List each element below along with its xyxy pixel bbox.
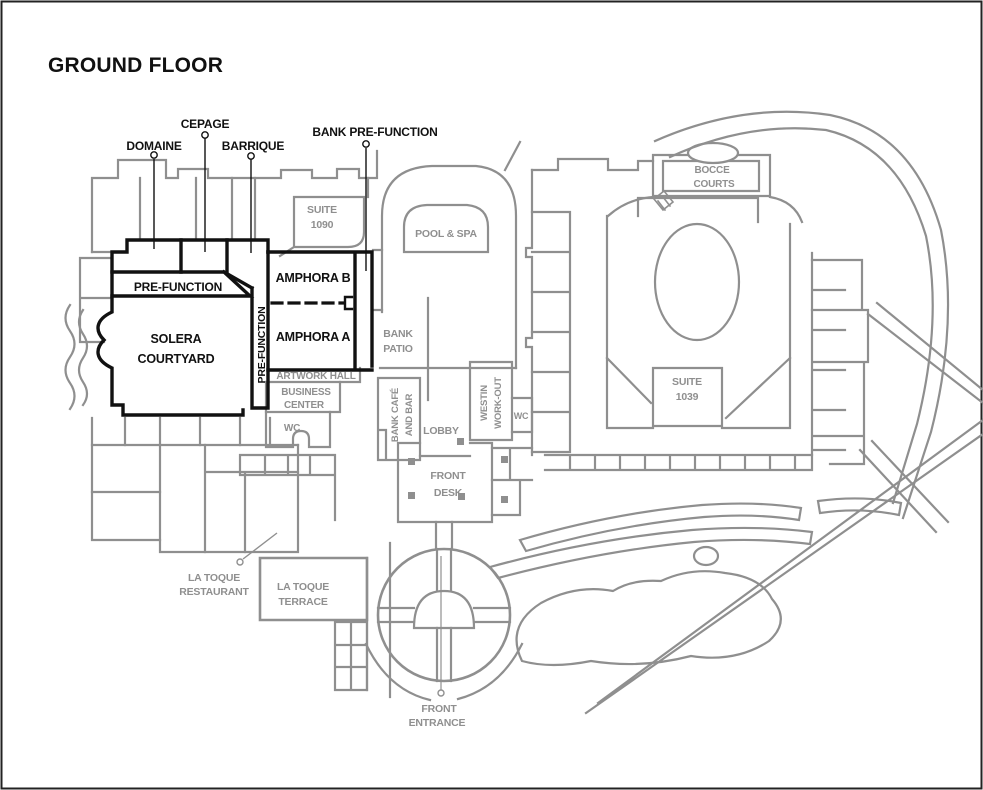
label-bank-patio-line-2: PATIO bbox=[383, 343, 413, 355]
label-pre-function: PRE-FUNCTION bbox=[134, 280, 222, 294]
east-building-west-corridor bbox=[532, 212, 570, 452]
column bbox=[501, 456, 508, 463]
label-lobby: LOBBY bbox=[423, 425, 459, 437]
label-solera-line-2: COURTYARD bbox=[138, 352, 215, 366]
label-suite-1039-line-1: SUITE bbox=[672, 376, 702, 388]
creek-line-1 bbox=[66, 305, 75, 409]
label-amphora-b: AMPHORA B bbox=[276, 271, 351, 285]
column bbox=[457, 438, 464, 445]
front-desk-room bbox=[398, 443, 492, 522]
floor-plan: GROUND FLOOR DOMAINE CEPAGE BARRIQUE BAN… bbox=[0, 0, 983, 790]
label-bocce-line-2: COURTS bbox=[693, 179, 735, 190]
label-business-center-line-2: CENTER bbox=[284, 400, 325, 411]
label-front-entrance-line-1: FRONT bbox=[421, 703, 457, 715]
label-la-toque-terrace-line-1: LA TOQUE bbox=[277, 581, 329, 593]
label-solera-line-1: SOLERA bbox=[151, 332, 202, 346]
amphora-outline bbox=[268, 252, 372, 370]
page-border bbox=[2, 2, 982, 789]
west-rooms bbox=[80, 258, 112, 342]
lobby-south-connectors bbox=[436, 522, 452, 549]
callout-cepage: CEPAGE bbox=[181, 117, 230, 131]
label-la-toque-restaurant-line-1: LA TOQUE bbox=[188, 572, 240, 584]
leader-dot-bank-pre-function bbox=[363, 141, 369, 147]
meeting-walls-black bbox=[98, 240, 372, 415]
leader-la-toque-restaurant bbox=[243, 533, 277, 559]
label-business-center-line-1: BUSINESS bbox=[281, 387, 331, 398]
courtyard-ring-walls bbox=[607, 216, 790, 428]
east-building-south-teeth bbox=[545, 455, 812, 470]
east-building-north-edge bbox=[532, 159, 653, 170]
label-suite-1039-line-2: 1039 bbox=[676, 391, 699, 403]
label-la-toque-terrace-line-2: TERRACE bbox=[278, 596, 328, 608]
label-pre-function-corridor: PRE-FUNCTION bbox=[256, 307, 268, 384]
label-suite-1090-line-2: 1090 bbox=[311, 219, 334, 231]
creek-line-2 bbox=[79, 310, 87, 405]
callout-domaine: DOMAINE bbox=[126, 139, 181, 153]
meeting-room-dividers bbox=[181, 240, 227, 272]
callout-barrique: BARRIQUE bbox=[222, 139, 285, 153]
label-westin-workout-line-1: WESTIN bbox=[479, 385, 490, 421]
terrace-south-grid bbox=[335, 622, 367, 690]
label-bank-patio-line-1: BANK bbox=[383, 328, 413, 340]
planting-blob bbox=[517, 571, 781, 665]
wing-northwest-east-stub bbox=[368, 151, 377, 178]
leader-dot-cepage bbox=[202, 132, 208, 138]
pool-west-connectors bbox=[373, 250, 382, 310]
label-front-desk-line-2: DESK bbox=[434, 487, 463, 499]
label-front-desk-line-1: FRONT bbox=[430, 470, 466, 482]
label-suite-1090-line-1: SUITE bbox=[307, 204, 337, 216]
floor-plan-svg: GROUND FLOOR DOMAINE CEPAGE BARRIQUE BAN… bbox=[0, 0, 983, 790]
label-bank-cafe-line-1: BANK CAFÉ bbox=[390, 388, 401, 442]
label-pool-spa: POOL & SPA bbox=[415, 228, 477, 240]
courtyard-oval bbox=[655, 224, 739, 340]
label-wc-business: WC bbox=[284, 423, 300, 434]
southwest-block-inner-h bbox=[92, 445, 298, 492]
label-amphora-a: AMPHORA A bbox=[276, 330, 351, 344]
label-la-toque-restaurant-line-2: RESTAURANT bbox=[179, 586, 249, 598]
front-desk-east-rooms bbox=[492, 448, 532, 515]
roundabout-center-bed bbox=[414, 591, 474, 628]
label-front-entrance-line-2: ENTRANCE bbox=[409, 717, 466, 729]
south-small-rooms bbox=[240, 455, 335, 520]
planting-island bbox=[694, 547, 718, 565]
column bbox=[501, 496, 508, 503]
westin-workout-room bbox=[470, 362, 512, 440]
label-bocce-line-1: BOCCE bbox=[694, 165, 730, 176]
meeting-rooms-row bbox=[112, 240, 268, 272]
leader-dot-la-toque-restaurant bbox=[237, 559, 243, 565]
pool-north-spur bbox=[505, 142, 520, 170]
planting-strip-3 bbox=[818, 498, 901, 515]
column bbox=[408, 458, 415, 465]
callout-bank-pre-function: BANK PRE-FUNCTION bbox=[312, 125, 437, 139]
column bbox=[408, 492, 415, 499]
wing-northwest-dividers bbox=[140, 178, 255, 240]
la-toque-restaurant-walls bbox=[160, 445, 298, 552]
label-westin-workout-line-2: WORK-OUT bbox=[493, 377, 504, 429]
label-artwork-hall: ARTWORK HALL bbox=[276, 371, 355, 382]
label-wc-lobby: WC bbox=[514, 411, 529, 421]
southwest-block-inner-v bbox=[125, 418, 270, 445]
leader-dot-front-entrance bbox=[438, 690, 444, 696]
page-title: GROUND FLOOR bbox=[48, 54, 223, 77]
leader-dot-barrique bbox=[248, 153, 254, 159]
stairs-hatch bbox=[654, 191, 673, 210]
label-bank-cafe-line-2: AND BAR bbox=[404, 393, 415, 436]
amphora-divider-notch bbox=[345, 297, 352, 309]
